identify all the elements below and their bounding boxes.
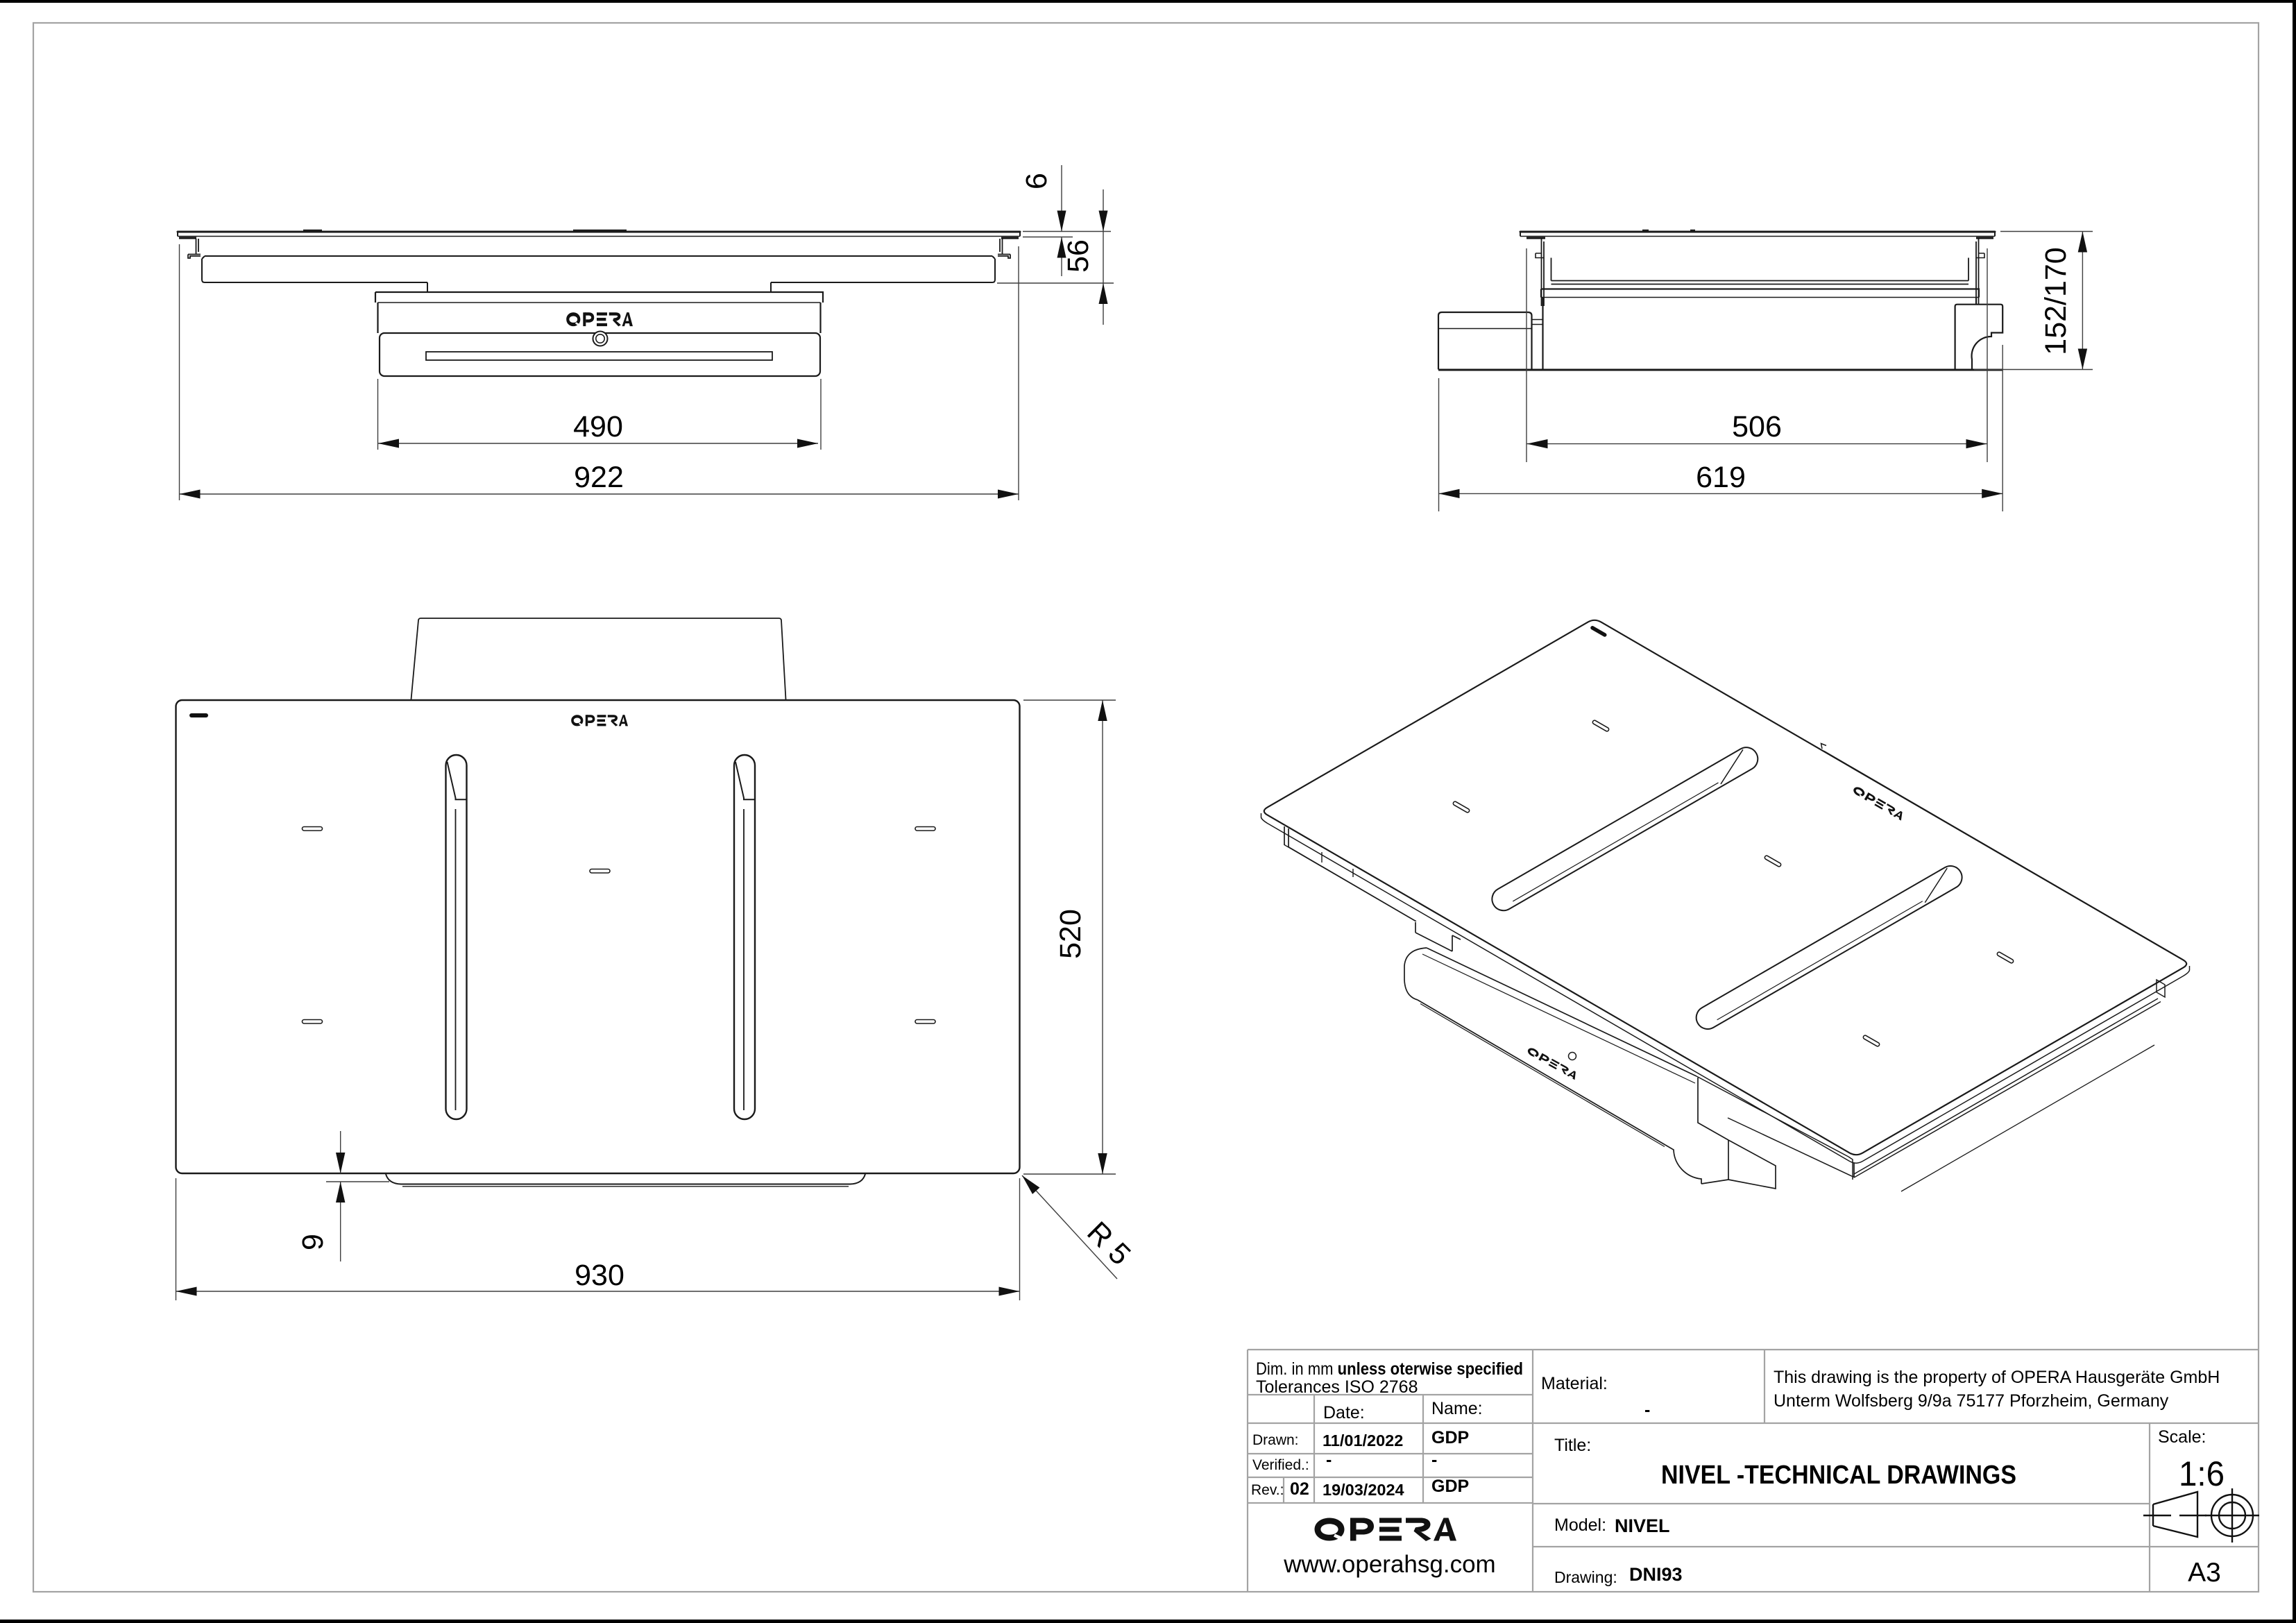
svg-text:619: 619: [1696, 461, 1746, 494]
svg-text:A3: A3: [2188, 1558, 2221, 1588]
svg-text:NIVEL: NIVEL: [1615, 1515, 1670, 1536]
svg-text:490: 490: [573, 410, 623, 443]
svg-text:GDP: GDP: [1431, 1477, 1469, 1496]
svg-text:506: 506: [1732, 410, 1782, 443]
svg-text:www.operahsg.com: www.operahsg.com: [1283, 1551, 1495, 1578]
svg-text:Material:: Material:: [1541, 1374, 1608, 1393]
svg-text:6: 6: [1020, 173, 1053, 189]
svg-text:520: 520: [1054, 909, 1087, 959]
svg-text:Drawing:: Drawing:: [1554, 1568, 1617, 1586]
svg-text:Tolerances ISO 2768: Tolerances ISO 2768: [1256, 1377, 1418, 1397]
svg-text:-: -: [1431, 1450, 1437, 1470]
svg-text:-: -: [1326, 1450, 1332, 1470]
svg-text:-: -: [1644, 1400, 1650, 1420]
svg-text:This drawing is the property o: This drawing is the property of OPERA Ha…: [1774, 1368, 2220, 1387]
svg-text:56: 56: [1062, 239, 1095, 273]
svg-text:GDP: GDP: [1431, 1428, 1469, 1447]
svg-text:Unterm Wolfsberg 9/9a 75177 Pf: Unterm Wolfsberg 9/9a 75177 Pforzheim, G…: [1774, 1391, 2169, 1411]
svg-text:19/03/2024: 19/03/2024: [1323, 1481, 1404, 1499]
svg-text:Scale:: Scale:: [2158, 1427, 2206, 1447]
svg-text:DNI93: DNI93: [1629, 1564, 1683, 1585]
svg-text:02: 02: [1290, 1479, 1309, 1499]
svg-text:9: 9: [296, 1234, 330, 1250]
svg-text:930: 930: [575, 1259, 624, 1292]
svg-text:152/170: 152/170: [2039, 247, 2073, 355]
svg-text:Rev.:: Rev.:: [1251, 1482, 1284, 1498]
svg-text:Title:: Title:: [1554, 1436, 1591, 1455]
svg-text:11/01/2022: 11/01/2022: [1323, 1431, 1403, 1450]
svg-text:Verified.:: Verified.:: [1252, 1457, 1309, 1473]
svg-text:Model:: Model:: [1554, 1515, 1606, 1535]
svg-text:Date:: Date:: [1323, 1403, 1365, 1422]
svg-text:922: 922: [574, 461, 624, 494]
svg-text:Drawn:: Drawn:: [1252, 1432, 1299, 1448]
svg-text:Name:: Name:: [1431, 1399, 1483, 1418]
svg-text:1:6: 1:6: [2179, 1454, 2225, 1493]
svg-text:Dim. in mm unless oterwise spe: Dim. in mm unless oterwise specified: [1256, 1359, 1523, 1379]
svg-text:NIVEL -TECHNICAL DRAWINGS: NIVEL -TECHNICAL DRAWINGS: [1661, 1461, 2016, 1490]
